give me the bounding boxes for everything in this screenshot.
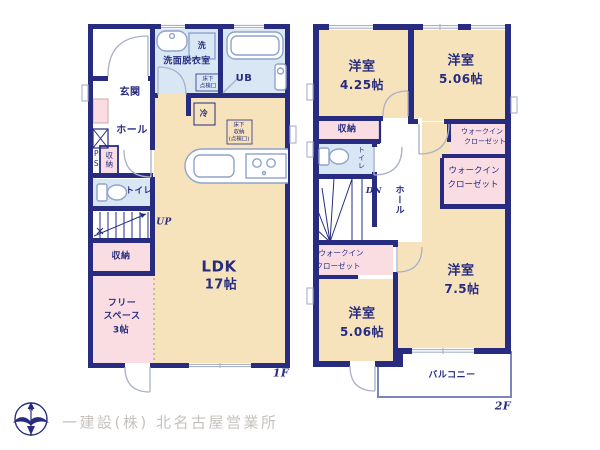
room-label-toilet-1f: トイレ	[125, 187, 152, 196]
room-label-425: 洋室	[348, 61, 375, 74]
floorplan-svg	[0, 0, 600, 450]
room-label-ub: UB	[236, 74, 253, 84]
hatch-label-1a: 床下	[202, 77, 213, 83]
ub-vanity-icon	[275, 64, 286, 90]
room-label-ps: PS	[92, 149, 100, 169]
room-label-genkan: 玄関	[120, 88, 141, 98]
room-label-senmen: 洗面脱衣室	[163, 58, 211, 67]
wic2-label-2: クローゼット	[447, 181, 498, 190]
washbasin-icon	[157, 31, 187, 51]
floor-label-2f: 2F	[495, 401, 511, 412]
room-label-shuno-stair: 収納	[111, 253, 130, 262]
bathtub-icon	[227, 32, 283, 59]
stairs-dn-label: DN	[366, 187, 382, 196]
room-label-506top: 洋室	[447, 55, 474, 68]
free-space-door	[125, 363, 150, 392]
window-ub-top	[234, 24, 264, 29]
company-name: 一建設(株) 北名古屋営業所	[62, 412, 278, 433]
wic3-label-2: クローゼット	[316, 262, 361, 270]
window-left-425	[307, 84, 313, 100]
toilet-icon-1f	[97, 184, 127, 201]
window-right-506top	[511, 97, 517, 113]
window-425-top	[329, 24, 373, 30]
room-label-shuno-2f: 収納	[337, 126, 356, 135]
hatch-label-2c: (点検口)	[229, 137, 250, 143]
room-ldk	[154, 93, 285, 365]
room-label-425-size: 4.25帖	[340, 79, 384, 91]
room-label-ldk-size: 17帖	[205, 279, 238, 292]
hatch-label-2b: 収納	[233, 130, 244, 136]
room-label-506btm: 洋室	[348, 308, 375, 321]
window-ldk-bottom	[189, 363, 251, 368]
wic1-label-2: クローゼット	[464, 139, 506, 146]
window-left-toilet2f	[307, 142, 313, 157]
hatch-label-2a: 床下	[233, 123, 244, 129]
room-label-free-2: スペース	[104, 313, 141, 322]
window-senmen-top	[161, 24, 185, 29]
shoe-cabinet	[93, 99, 108, 123]
compass-north-label: N	[28, 406, 33, 413]
room-label-ldk: LDK	[201, 260, 236, 275]
window-left-506btm	[307, 288, 313, 304]
room-label-hall-1f: ホール	[116, 126, 148, 136]
room-label-shuno-hall: 収納	[105, 152, 113, 169]
window-right-ldk	[290, 126, 296, 143]
fridge-label: 冷	[200, 110, 209, 118]
room-label-hall-2f: ホール	[394, 185, 403, 215]
stairs-up-label: UP	[156, 219, 172, 228]
kitchen-counter-icon	[185, 149, 288, 183]
wic3-label-1: ウォークイン	[319, 249, 364, 257]
floorplan-page: 玄関 ホール PS 収納 トイレ UP 収納 フリー スペース 3帖 LDK 1…	[0, 0, 600, 450]
door-balcony-506	[350, 361, 375, 391]
room-label-free-1: フリー	[108, 300, 137, 309]
room-label-free-3: 3帖	[113, 327, 129, 336]
hall-2f	[375, 118, 422, 242]
balcony-label: バルコニー	[428, 372, 475, 381]
hatch-label-1b: 点検口	[200, 84, 217, 90]
room-label-toilet-2f: トイレ	[358, 146, 365, 170]
room-label-506btm-size: 5.06帖	[340, 326, 384, 338]
room-label-laundry: 洗	[198, 42, 207, 50]
floor-1f-graphics	[82, 24, 296, 392]
toilet-icon-2f	[319, 148, 349, 165]
room-506-btm	[315, 279, 393, 365]
floor-label-1f: 1F	[273, 368, 289, 379]
window-75-balcony	[412, 348, 474, 354]
wic2-label-1: ウォークイン	[448, 167, 499, 176]
room-label-75: 洋室	[447, 265, 474, 278]
wic1-label-1: ウォークイン	[461, 129, 503, 136]
room-label-75-size: 7.5帖	[444, 283, 479, 295]
room-label-506top-size: 5.06帖	[439, 73, 483, 85]
floor-2f-graphics	[307, 24, 517, 397]
window-left-genkan	[82, 85, 88, 101]
